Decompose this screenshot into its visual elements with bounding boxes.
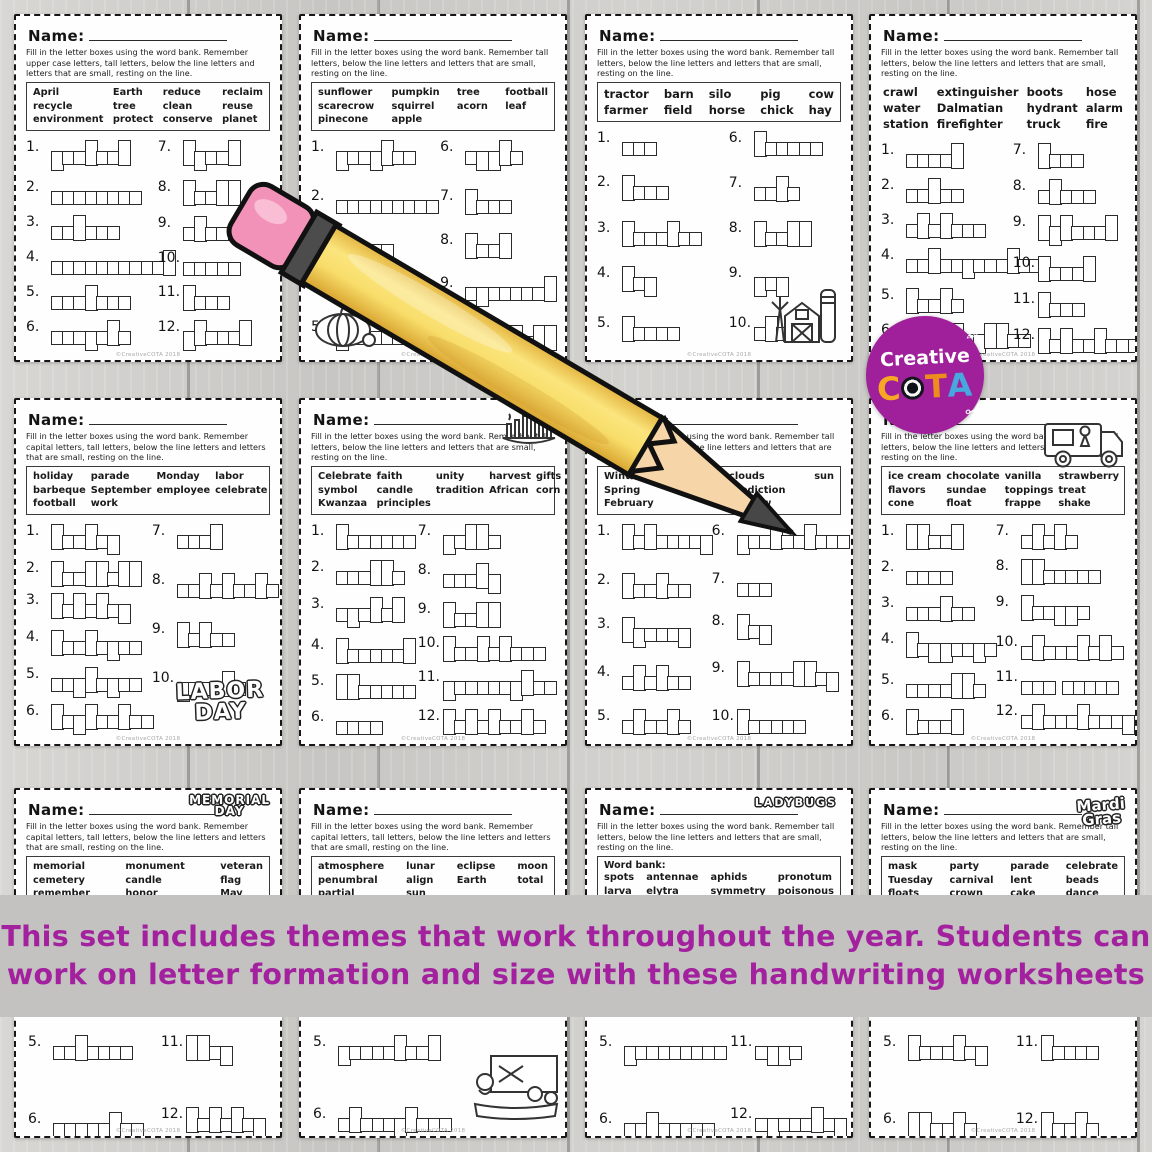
letter-boxes xyxy=(443,635,544,662)
worksheet-item: 11. xyxy=(1016,1034,1129,1061)
word-bank-label: Word bank: xyxy=(604,860,834,871)
name-label: Name: xyxy=(599,801,655,819)
item-number: 12. xyxy=(161,1106,183,1122)
item-number: 1. xyxy=(26,523,48,539)
worksheet-item: 10. xyxy=(1013,255,1137,282)
letter-boxes xyxy=(622,265,656,297)
letter-boxes xyxy=(177,621,233,648)
item-number: 11. xyxy=(418,669,440,685)
worksheet-item: 6. xyxy=(26,703,152,735)
item-number: 12. xyxy=(996,703,1018,719)
name-line xyxy=(374,411,512,425)
worksheet-item: 3. xyxy=(26,592,152,624)
item-number: 10. xyxy=(712,708,734,724)
worksheet-item: 9. xyxy=(1013,214,1137,246)
letter-box xyxy=(667,327,680,341)
bank-word: African xyxy=(489,484,531,498)
letter-box xyxy=(228,140,241,166)
worksheet-item: 5. xyxy=(311,673,418,700)
letter-boxes xyxy=(336,139,414,171)
letter-boxes xyxy=(336,637,414,664)
items-area: 5.6.11.12. xyxy=(599,1034,845,1138)
bank-word: atmosphere xyxy=(318,860,384,874)
letter-box xyxy=(759,583,772,597)
letter-box xyxy=(678,584,691,598)
name-line xyxy=(944,27,1082,41)
worksheet-item: 2. xyxy=(881,177,1013,204)
worksheet-item: 11. xyxy=(1013,291,1137,318)
item-number: 2. xyxy=(881,177,903,193)
bank-word: fire xyxy=(1086,116,1123,132)
letter-boxes xyxy=(51,214,118,241)
items-column-left: 5.6. xyxy=(313,1034,446,1138)
letter-box xyxy=(1083,256,1096,282)
worksheet-item: 6. xyxy=(881,708,996,735)
letter-boxes xyxy=(443,708,544,735)
letter-box xyxy=(826,672,839,692)
item-number: 5. xyxy=(313,1034,335,1050)
letter-box xyxy=(129,561,142,587)
items-column-left: 5.6. xyxy=(28,1034,161,1138)
item-number: 1. xyxy=(311,139,333,155)
item-number: 5. xyxy=(597,315,619,331)
bank-word: chocolate xyxy=(946,470,999,484)
letter-box xyxy=(403,638,416,664)
name-line xyxy=(89,411,227,425)
bank-word: total xyxy=(517,874,548,888)
letter-box xyxy=(228,262,241,276)
letter-boxes xyxy=(177,572,278,599)
item-number: 8. xyxy=(418,562,440,578)
ladybugs-bubble-art: LADYBUGS xyxy=(755,798,837,808)
items-column-left: 1.2.3.4.5.6. xyxy=(881,523,996,735)
worksheet-item: 5. xyxy=(313,1034,446,1066)
item-number: 3. xyxy=(26,592,48,608)
worksheet-copyright: ©CreativeCOTA 2018 xyxy=(16,1128,280,1134)
worksheet-copyright: ©CreativeCOTA 2018 xyxy=(587,352,851,358)
worksheet-item: 7. xyxy=(418,523,555,555)
bank-word: protect xyxy=(113,113,153,127)
ice-cream-truck-clipart xyxy=(1041,412,1127,474)
worksheet-item: 10. xyxy=(418,635,555,662)
letter-boxes xyxy=(1038,214,1116,246)
letter-box xyxy=(1071,154,1084,168)
worksheet-item: 10. xyxy=(712,708,849,735)
worksheet-item: 8. xyxy=(418,562,555,594)
worksheet-item: 3. xyxy=(311,596,418,628)
bank-word: acorn xyxy=(457,100,488,114)
bank-word: celebrate xyxy=(215,484,267,498)
letter-boxes xyxy=(51,284,129,311)
item-number: 8. xyxy=(712,613,734,629)
letter-boxes xyxy=(51,523,118,555)
worksheet-item: 2. xyxy=(26,560,152,587)
letter-boxes xyxy=(622,220,700,247)
labor-day-bubble-art: LABORDAY xyxy=(175,681,265,726)
letter-boxes xyxy=(1038,142,1083,169)
memorial-day-bubble-art: MEMORIALDAY xyxy=(189,795,270,818)
bank-word xyxy=(536,497,561,511)
logo-letter-t: T xyxy=(925,370,948,403)
worksheet-item: 6. xyxy=(26,319,158,351)
bank-word: tractor xyxy=(604,86,649,102)
item-number: 12. xyxy=(1013,327,1035,343)
worksheet-copyright: ©CreativeCOTA 2018 xyxy=(587,736,851,742)
worksheet-item: 1. xyxy=(881,142,1013,169)
bank-word: spots xyxy=(604,871,634,885)
bank-word: barbeque xyxy=(33,484,86,498)
worksheet-item: 11. xyxy=(161,1034,274,1066)
bank-word: reduce xyxy=(163,86,213,100)
bank-word: float xyxy=(946,497,999,511)
classroom-clipart xyxy=(469,1052,561,1124)
letter-boxes xyxy=(338,1034,439,1066)
letter-box xyxy=(488,574,501,594)
letter-box xyxy=(759,625,772,645)
items-column-right: 11.12. xyxy=(730,1034,845,1138)
letter-boxes xyxy=(51,629,141,661)
items-column-left: 5.6. xyxy=(599,1034,730,1138)
item-number: 6. xyxy=(599,1111,621,1127)
letter-box xyxy=(1105,215,1118,241)
bank-word: hay xyxy=(809,102,834,118)
worksheet-item: 5. xyxy=(599,1034,730,1066)
letter-boxes xyxy=(906,523,962,550)
letter-boxes xyxy=(906,177,962,204)
word-bank: holidayparadeMondaylaborbarbequeSeptembe… xyxy=(26,466,270,515)
letter-box xyxy=(789,1046,802,1060)
letter-box xyxy=(428,1035,441,1061)
worksheet-item: 3. xyxy=(597,220,729,247)
letter-boxes xyxy=(754,175,799,202)
letter-boxes xyxy=(443,601,499,628)
worksheet-item: 7. xyxy=(729,175,841,202)
logo-letter-c: C xyxy=(877,372,902,405)
letter-box xyxy=(499,233,512,259)
name-line xyxy=(944,801,1082,815)
worksheet-instructions: Fill in the letter boxes using the word … xyxy=(26,47,270,79)
letter-box xyxy=(810,142,823,156)
worksheet-item: 2. xyxy=(311,188,440,214)
bank-word: pinecone xyxy=(318,113,374,127)
worksheet-item: 9. xyxy=(996,594,1133,626)
letter-boxes xyxy=(183,179,239,206)
worksheet-item: 4. xyxy=(26,629,152,661)
letter-boxes xyxy=(908,1034,986,1066)
bank-word: celebrate xyxy=(1066,860,1118,874)
worksheet-item: 4. xyxy=(311,637,418,664)
item-number: 8. xyxy=(729,220,751,236)
caption-band: This set includes themes that work throu… xyxy=(0,895,1152,1017)
letter-boxes xyxy=(1021,634,1122,661)
item-number: 3. xyxy=(26,214,48,230)
letter-boxes xyxy=(1038,327,1137,354)
letter-box xyxy=(499,200,512,214)
bank-word: lunar xyxy=(406,860,435,874)
bank-word: cow xyxy=(809,86,834,102)
name-row: Name: xyxy=(28,410,270,429)
worksheet-copyright: ©CreativeCOTA 2018 xyxy=(871,736,1135,742)
worksheet-item: 12. xyxy=(1013,327,1137,354)
item-number: 11. xyxy=(1016,1034,1038,1050)
bank-word: reclaim xyxy=(222,86,263,100)
bank-word: align xyxy=(406,874,435,888)
letter-box xyxy=(951,143,964,169)
letter-box xyxy=(544,276,557,302)
item-number: 10. xyxy=(1013,255,1035,271)
items-column-right: 7.8.9.10.11.12. xyxy=(1013,142,1137,354)
worksheet-item: 6. xyxy=(311,709,418,735)
bank-word: penumbral xyxy=(318,874,384,888)
letter-boxes xyxy=(51,560,141,587)
letter-box xyxy=(118,604,131,624)
item-number: 1. xyxy=(597,523,619,539)
bank-word: flavors xyxy=(888,484,941,498)
worksheet-item: 1. xyxy=(311,523,418,550)
item-number: 6. xyxy=(26,319,48,335)
bank-word: candle xyxy=(125,874,184,888)
letter-boxes xyxy=(1021,594,1088,626)
worksheet-item: 7. xyxy=(996,523,1133,550)
letter-boxes xyxy=(1038,178,1094,205)
letter-box xyxy=(129,641,142,655)
bank-word: faith xyxy=(377,470,431,484)
letter-box xyxy=(1083,190,1096,204)
bank-word xyxy=(814,484,834,498)
wood-background: Name:Fill in the letter boxes using the … xyxy=(0,0,1152,1152)
worksheet-item: 4. xyxy=(881,631,996,663)
items-area: 1.2.3.4.5.6.7.8.9.10. xyxy=(597,523,841,735)
bank-word: moon xyxy=(517,860,548,874)
name-label: Name: xyxy=(28,27,84,45)
letter-boxes xyxy=(622,708,689,735)
worksheet-item: 5. xyxy=(881,672,996,699)
letter-box xyxy=(1122,715,1135,735)
letter-box xyxy=(392,571,405,585)
items-column-left: 1.2.3.4.5. xyxy=(597,130,729,342)
bank-word: parade xyxy=(91,470,152,484)
bank-word: April xyxy=(33,86,103,100)
letter-box xyxy=(403,151,416,165)
bank-word: shake xyxy=(1058,497,1119,511)
item-number: 4. xyxy=(311,637,333,653)
letter-box xyxy=(1111,646,1124,660)
letter-boxes xyxy=(737,613,771,645)
item-number: 2. xyxy=(26,560,48,576)
bank-word: recycle xyxy=(33,100,103,114)
name-line xyxy=(374,27,512,41)
letter-boxes xyxy=(906,559,951,585)
item-number: 9. xyxy=(158,215,180,231)
bank-word: unity xyxy=(436,470,484,484)
item-number: 1. xyxy=(881,142,903,158)
bank-word: pig xyxy=(760,86,793,102)
bank-word: Tuesday xyxy=(888,874,933,888)
worksheet-item: 2. xyxy=(597,572,712,599)
items-column-right: 11.12. xyxy=(161,1034,274,1138)
bank-word: hydrant xyxy=(1027,100,1078,116)
item-number: 6. xyxy=(26,703,48,719)
worksheet-item: 5. xyxy=(883,1034,1016,1066)
barn-clipart xyxy=(769,282,843,354)
bank-word: symbol xyxy=(318,484,372,498)
letter-box xyxy=(689,232,702,246)
item-number: 3. xyxy=(311,596,333,612)
item-number: 1. xyxy=(311,523,333,539)
worksheet-instructions: Fill in the letter boxes using the word … xyxy=(311,821,555,853)
pencil-icon: ✎ xyxy=(960,325,982,343)
name-label: Name: xyxy=(313,411,369,429)
item-number: 7. xyxy=(996,523,1018,539)
letter-box xyxy=(392,597,405,623)
bank-word: September xyxy=(91,484,152,498)
worksheet-item: 12. xyxy=(418,708,555,735)
worksheet-item: 12. xyxy=(158,319,270,351)
worksheet-item: 3. xyxy=(26,214,158,241)
letter-box xyxy=(1088,570,1101,584)
item-number: 11. xyxy=(158,284,180,300)
worksheet-item: 11. xyxy=(996,669,1133,695)
item-number: 9. xyxy=(418,601,440,617)
bank-word: squirrel xyxy=(392,100,440,114)
letter-box xyxy=(951,709,964,735)
bank-word: boots xyxy=(1027,84,1078,100)
worksheet-instructions: Fill in the letter boxes using the word … xyxy=(26,821,270,853)
worksheet-item: 1. xyxy=(597,130,729,156)
worksheet-item: 10. xyxy=(996,634,1133,661)
letter-box xyxy=(120,1046,133,1060)
item-number: 6. xyxy=(311,709,333,725)
item-number: 5. xyxy=(881,287,903,303)
letter-box xyxy=(656,186,669,200)
bank-word xyxy=(457,113,488,127)
worksheet-item: 8. xyxy=(152,572,278,599)
items-column-left: 1.2.3.4.5.6. xyxy=(311,523,418,735)
item-number: 4. xyxy=(881,247,903,263)
worksheet-instructions: Fill in the letter boxes using the word … xyxy=(881,47,1125,79)
item-number: 5. xyxy=(28,1034,50,1050)
letter-boxes xyxy=(183,284,228,311)
letter-boxes xyxy=(906,631,996,663)
item-number: 5. xyxy=(597,708,619,724)
letter-box xyxy=(973,684,986,698)
bank-word: antennae xyxy=(646,871,698,885)
item-number: 6. xyxy=(440,139,462,155)
letter-box xyxy=(510,151,523,165)
letter-box xyxy=(799,221,812,247)
item-number: 9. xyxy=(1013,214,1035,230)
worksheet-item: 12. xyxy=(996,703,1133,735)
worksheet-item: 5. xyxy=(28,1034,161,1061)
letter-box xyxy=(714,1046,727,1060)
item-number: 8. xyxy=(152,572,174,588)
worksheet-item: 4. xyxy=(597,265,729,297)
letter-boxes xyxy=(443,669,555,701)
bank-word: sundae xyxy=(946,484,999,498)
letter-boxes xyxy=(754,220,810,247)
bank-word: holiday xyxy=(33,470,86,484)
letter-box xyxy=(266,584,279,598)
bank-word: reuse xyxy=(222,100,263,114)
caption-line-2: work on letter formation and size with t… xyxy=(7,956,1145,994)
letter-box xyxy=(370,721,383,735)
letter-box xyxy=(1065,535,1078,549)
letter-box xyxy=(973,224,986,238)
letter-box xyxy=(118,140,131,166)
item-number: 6. xyxy=(729,130,751,146)
item-number: 2. xyxy=(311,559,333,575)
worksheet-item: 8. xyxy=(996,558,1133,585)
item-number: 4. xyxy=(597,265,619,281)
bank-word: Celebrate xyxy=(318,470,372,484)
items-column-left: 1.2.3.4.5.6. xyxy=(26,139,158,351)
bank-word: firefighter xyxy=(937,116,1019,132)
letter-box xyxy=(544,681,557,695)
letter-boxes xyxy=(737,708,804,735)
mardi-gras-bubble-art: MardiGras xyxy=(1076,796,1126,828)
letter-boxes xyxy=(1021,669,1118,695)
name-label: Name: xyxy=(28,411,84,429)
worksheet-item: 8. xyxy=(440,232,555,259)
items-column-right: 7.8.9.10.11.12. xyxy=(996,523,1133,735)
bank-word xyxy=(215,497,267,511)
worksheet-item: 9. xyxy=(418,601,555,628)
letter-boxes xyxy=(51,249,174,276)
bank-word: sunflower xyxy=(318,86,374,100)
letter-box xyxy=(787,187,800,201)
bank-word: crawl xyxy=(883,84,929,100)
letter-box xyxy=(1086,1046,1099,1060)
bank-word: horse xyxy=(709,102,745,118)
bank-word: Kwanzaa xyxy=(318,497,372,511)
name-label: Name: xyxy=(313,27,369,45)
worksheet-item: 5. xyxy=(881,287,1013,314)
letter-box xyxy=(107,226,120,240)
worksheet-item: 1. xyxy=(881,523,996,550)
item-number: 6. xyxy=(313,1106,335,1122)
name-line xyxy=(89,27,227,41)
bank-word: work xyxy=(91,497,152,511)
letter-boxes xyxy=(754,130,821,157)
bank-word: tree xyxy=(113,100,153,114)
worksheet-copyright: ©CreativeCOTA 2018 xyxy=(301,1128,565,1134)
letter-boxes xyxy=(51,319,129,351)
letter-boxes xyxy=(737,660,838,692)
letter-box xyxy=(403,535,416,549)
worksheet-item: 5. xyxy=(26,284,158,311)
item-number: 9. xyxy=(996,594,1018,610)
letter-box xyxy=(222,633,235,647)
letter-boxes xyxy=(51,666,141,698)
bank-word: candle xyxy=(377,484,431,498)
bank-word: barn xyxy=(664,86,694,102)
letter-box xyxy=(951,299,964,313)
item-number: 1. xyxy=(881,523,903,539)
worksheet-item: 4. xyxy=(881,247,1013,279)
letter-box xyxy=(239,320,252,346)
letter-boxes xyxy=(336,673,414,700)
bank-word: football xyxy=(33,497,86,511)
item-number: 12. xyxy=(418,708,440,724)
bank-word: scarecrow xyxy=(318,100,374,114)
letter-box xyxy=(403,685,416,699)
worksheet-item: 11. xyxy=(418,669,555,701)
worksheet-item: 2. xyxy=(311,559,418,586)
bank-word: Earth xyxy=(457,874,496,888)
bank-word xyxy=(157,497,211,511)
worksheet-instructions: Fill in the letter boxes using the word … xyxy=(26,431,270,463)
word-bank: sunflowerpumpkintreefootballscarecrowsqu… xyxy=(311,82,555,131)
